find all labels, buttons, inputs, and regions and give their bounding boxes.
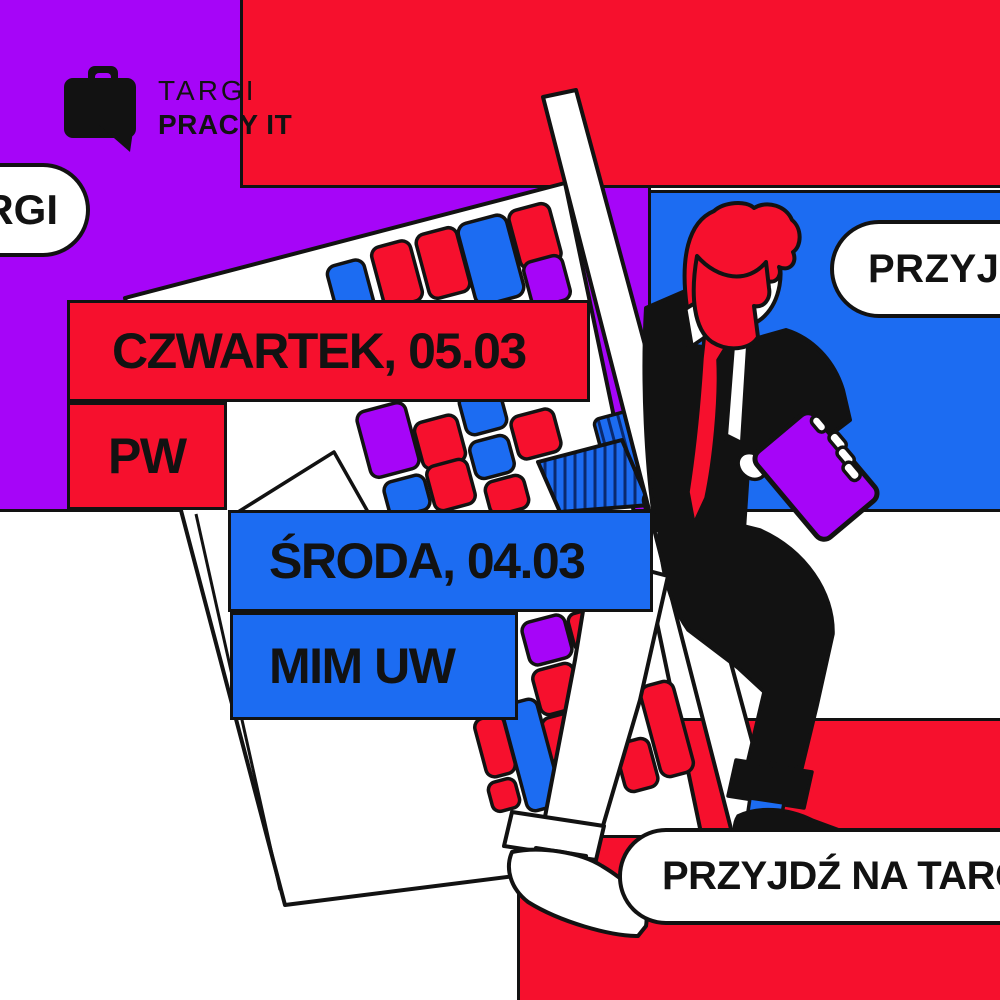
speech-bubble-right-text: PRZYJD [868,247,1000,292]
banner-date-sroda-label: ŚRODA, 04.03 [269,532,584,590]
logo-wordmark: TARGI PRACY IT [158,74,292,142]
banner-venue-mim-uw-label: MIM UW [269,637,454,695]
briefcase-speech-bubble-icon [60,60,150,160]
speech-bubble-bottom-text: PRZYJDŹ NA TARG [662,854,1000,899]
banner-venue-mim-uw: MIM UW [230,612,518,720]
job-fair-poster: CZWARTEK, 05.03 PW ŚRODA, 04.03 MIM UW R… [0,0,1000,1000]
red-stripe-block [648,718,1000,835]
speech-bubble-right: PRZYJD [830,220,1000,318]
banner-date-czwartek: CZWARTEK, 05.03 [67,300,590,402]
speech-bubble-left-text: RGI [0,186,58,234]
banner-date-sroda: ŚRODA, 04.03 [228,510,653,612]
banner-venue-pw: PW [67,402,227,510]
speech-bubble-left: RGI [0,163,90,257]
speech-bubble-bottom: PRZYJDŹ NA TARG [618,828,1000,925]
logo-line1: TARGI [158,74,292,108]
banner-date-czwartek-label: CZWARTEK, 05.03 [112,322,526,380]
banner-venue-pw-label: PW [108,427,186,485]
logo-line2: PRACY IT [158,108,292,142]
red-top-block [240,0,1000,188]
